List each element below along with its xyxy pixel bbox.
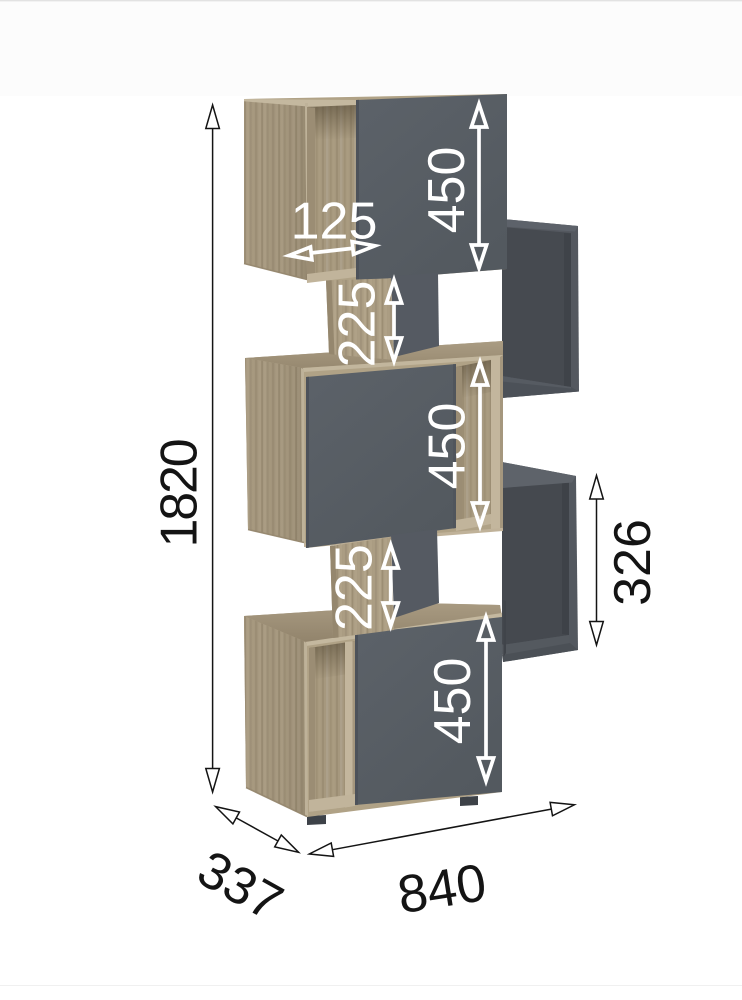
svg-text:326: 326: [604, 519, 662, 606]
svg-text:450: 450: [418, 147, 476, 234]
svg-text:450: 450: [424, 658, 482, 745]
svg-text:225: 225: [329, 281, 387, 368]
svg-text:1820: 1820: [151, 440, 209, 547]
svg-text:450: 450: [419, 403, 477, 490]
svg-text:225: 225: [326, 544, 384, 631]
svg-text:125: 125: [291, 193, 378, 251]
